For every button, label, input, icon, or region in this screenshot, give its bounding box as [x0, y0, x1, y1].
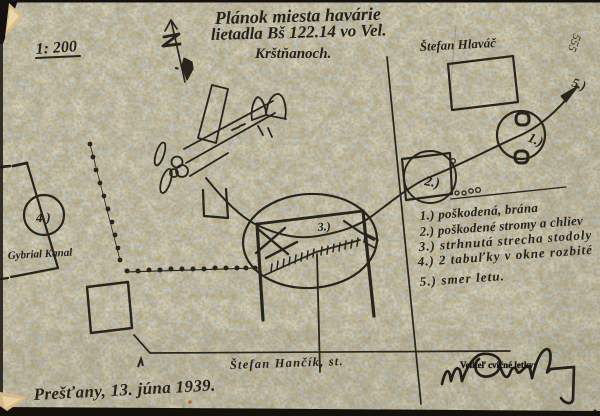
svg-text:Krštňanoch.: Krštňanoch. [254, 46, 331, 62]
svg-text:4.): 4.) [35, 210, 51, 225]
svg-text:1: 200: 1: 200 [35, 38, 77, 58]
svg-text:2.): 2.) [422, 174, 441, 192]
svg-text:3.): 3.) [316, 219, 331, 234]
